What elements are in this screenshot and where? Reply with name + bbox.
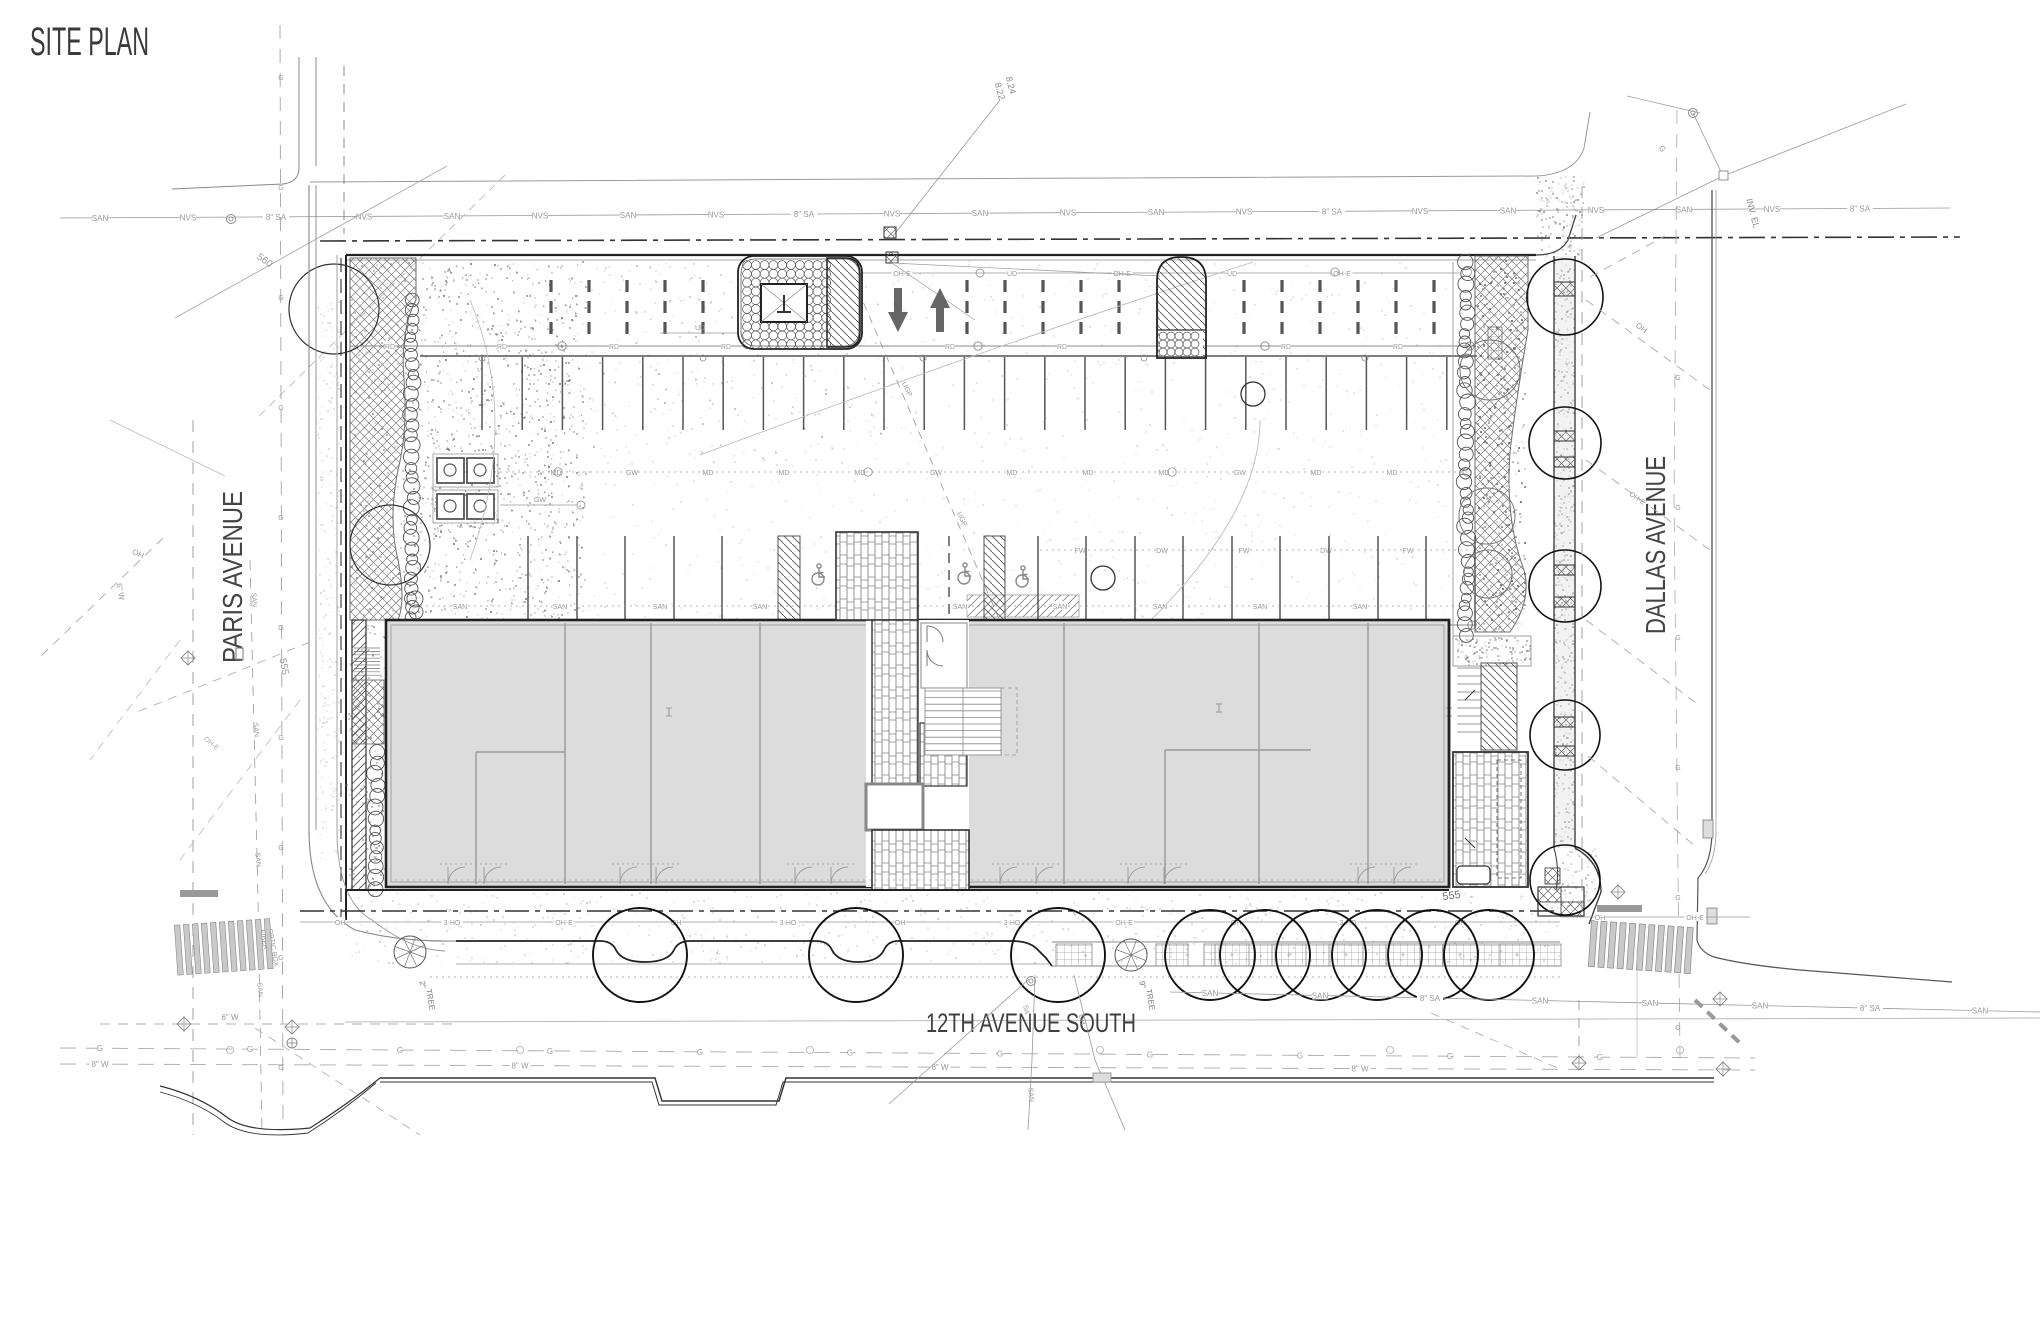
svg-text:PARIS AVENUE: PARIS AVENUE <box>217 491 248 663</box>
svg-text:OH-E: OH-E <box>1333 271 1351 278</box>
svg-text:G: G <box>278 295 283 302</box>
svg-text:FW: FW <box>1075 548 1086 555</box>
svg-text:MD: MD <box>1387 470 1398 477</box>
svg-text:MD: MD <box>779 470 790 477</box>
svg-text:NVS: NVS <box>1236 208 1252 217</box>
svg-text:SAN: SAN <box>1253 604 1267 611</box>
svg-text:G: G <box>278 75 283 82</box>
svg-text:SAN: SAN <box>620 211 637 220</box>
svg-text:SAN: SAN <box>972 209 989 218</box>
svg-text:RD: RD <box>945 344 955 351</box>
svg-text:RD: RD <box>1057 344 1067 351</box>
svg-text:GW: GW <box>1234 470 1246 477</box>
svg-text:MD: MD <box>1083 470 1094 477</box>
svg-text:RD: RD <box>721 344 731 351</box>
svg-text:DW: DW <box>1156 548 1168 555</box>
svg-text:NVS: NVS <box>884 210 900 219</box>
svg-text:DW: DW <box>1320 548 1332 555</box>
svg-text:SAN: SAN <box>653 604 667 611</box>
svg-text:NVS: NVS <box>532 212 548 221</box>
svg-text:GW: GW <box>626 470 638 477</box>
svg-text:FW: FW <box>1239 548 1250 555</box>
svg-text:G: G <box>278 1065 283 1072</box>
svg-text:SITE PLAN: SITE PLAN <box>30 20 149 64</box>
svg-text:NVS: NVS <box>356 212 372 221</box>
svg-text:MD: MD <box>1007 470 1018 477</box>
svg-text:RD: RD <box>1393 344 1403 351</box>
svg-text:8" SA: 8" SA <box>1850 205 1871 214</box>
svg-text:RD: RD <box>385 344 395 351</box>
svg-text:G: G <box>278 845 283 852</box>
svg-text:SAN: SAN <box>1148 208 1165 217</box>
svg-text:SAN: SAN <box>253 852 261 867</box>
svg-text:NVS: NVS <box>180 213 196 222</box>
svg-text:SAN: SAN <box>453 604 467 611</box>
svg-text:UD: UD <box>1227 271 1237 278</box>
svg-text:G: G <box>278 515 283 522</box>
svg-text:RD: RD <box>1281 344 1291 351</box>
svg-text:FW: FW <box>1403 548 1414 555</box>
svg-text:RD: RD <box>497 344 507 351</box>
svg-text:GW: GW <box>534 497 546 504</box>
svg-text:SAN: SAN <box>92 214 109 223</box>
svg-text:8" SA: 8" SA <box>1322 207 1343 216</box>
svg-text:SAN: SAN <box>255 982 263 997</box>
svg-text:8" SA: 8" SA <box>794 210 815 219</box>
svg-text:SAN: SAN <box>1500 206 1517 215</box>
svg-text:G: G <box>278 625 283 632</box>
svg-text:NVS: NVS <box>1588 206 1604 215</box>
svg-text:SAN: SAN <box>444 212 461 221</box>
svg-text:SAN: SAN <box>1053 604 1067 611</box>
svg-text:SAN: SAN <box>753 604 767 611</box>
svg-text:8" SA: 8" SA <box>266 213 287 222</box>
svg-text:G: G <box>278 185 283 192</box>
svg-text:MD: MD <box>1311 470 1322 477</box>
svg-text:SAN: SAN <box>1676 205 1693 214</box>
svg-text:GW: GW <box>930 470 942 477</box>
svg-text:UD: UD <box>1007 271 1017 278</box>
svg-text:SAN: SAN <box>251 722 259 737</box>
svg-text:SAN: SAN <box>1353 604 1367 611</box>
svg-text:NVS: NVS <box>708 211 724 220</box>
svg-text:MD: MD <box>703 470 714 477</box>
svg-text:RD: RD <box>609 344 619 351</box>
svg-text:SAN: SAN <box>953 604 967 611</box>
svg-text:G: G <box>278 735 283 742</box>
svg-text:G: G <box>278 405 283 412</box>
svg-text:NVS: NVS <box>1412 207 1428 216</box>
svg-text:NVS: NVS <box>1060 209 1076 218</box>
svg-text:UD: UD <box>695 325 705 332</box>
svg-text:SAN: SAN <box>553 604 567 611</box>
svg-text:SAN: SAN <box>249 592 257 607</box>
svg-text:NVS: NVS <box>1764 205 1780 214</box>
